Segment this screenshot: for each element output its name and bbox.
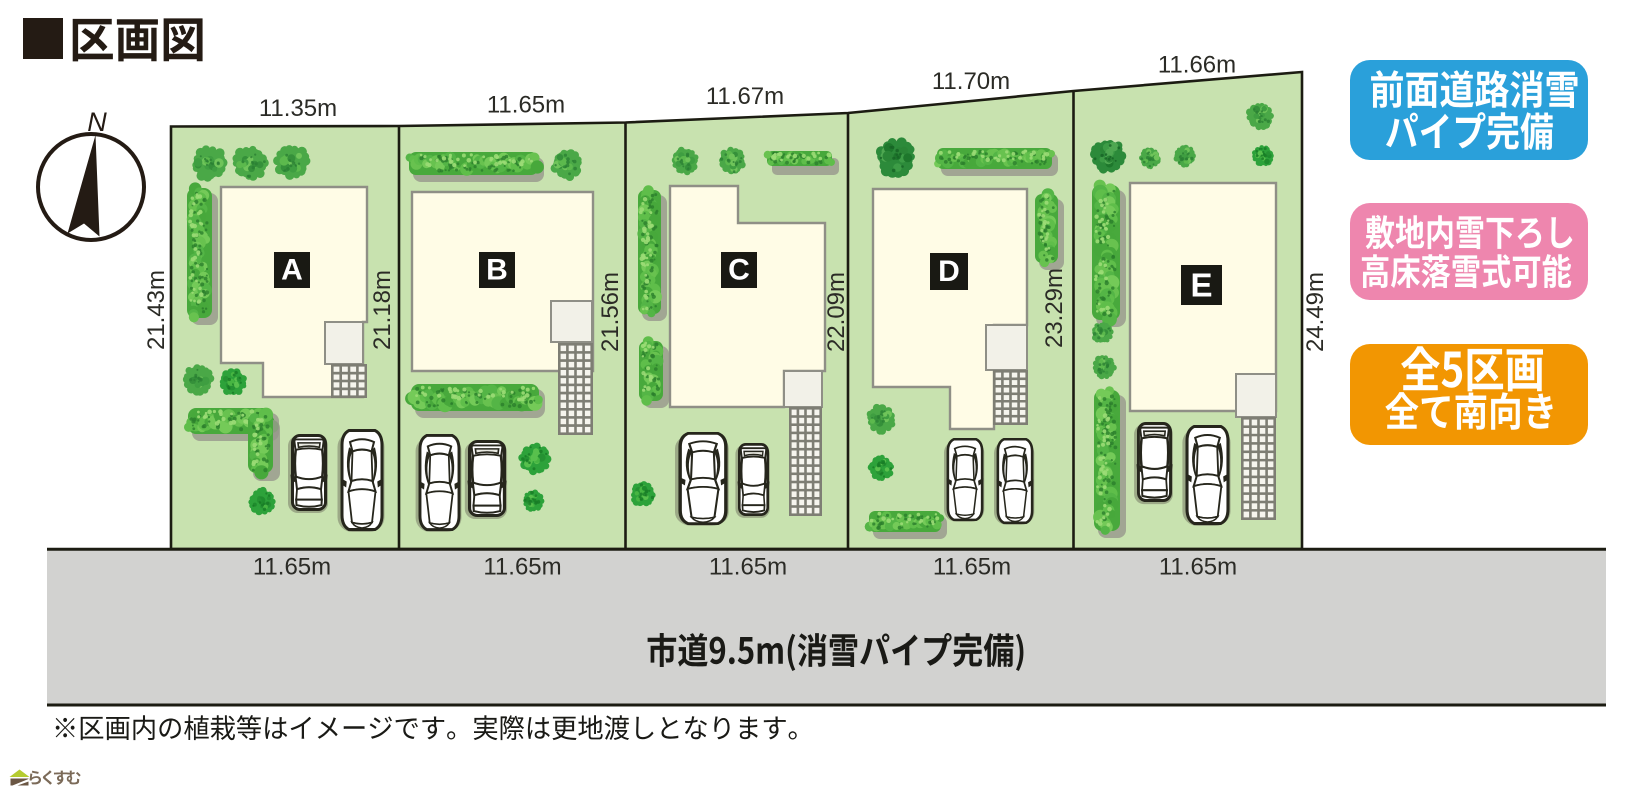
svg-text:11.65m: 11.65m xyxy=(709,554,787,581)
svg-text:23.29m: 23.29m xyxy=(1041,268,1068,348)
svg-text:11.70m: 11.70m xyxy=(932,68,1010,95)
svg-text:11.66m: 11.66m xyxy=(1158,52,1236,79)
svg-text:11.65m: 11.65m xyxy=(483,554,561,581)
svg-text:11.65m: 11.65m xyxy=(487,92,565,119)
svg-text:11.35m: 11.35m xyxy=(259,95,337,122)
svg-text:22.09m: 22.09m xyxy=(823,272,850,352)
svg-text:21.56m: 21.56m xyxy=(597,272,624,352)
svg-text:11.65m: 11.65m xyxy=(1159,554,1237,581)
svg-text:E: E xyxy=(1190,267,1212,304)
svg-text:C: C xyxy=(728,254,750,287)
svg-text:N: N xyxy=(87,107,107,137)
svg-text:21.18m: 21.18m xyxy=(369,270,396,350)
svg-text:24.49m: 24.49m xyxy=(1302,272,1329,352)
svg-text:21.43m: 21.43m xyxy=(143,270,170,350)
svg-text:B: B xyxy=(486,254,508,287)
svg-text:11.65m: 11.65m xyxy=(933,554,1011,581)
svg-text:A: A xyxy=(281,254,303,287)
svg-text:11.67m: 11.67m xyxy=(706,83,784,110)
svg-text:11.65m: 11.65m xyxy=(253,554,331,581)
svg-text:D: D xyxy=(938,255,960,288)
